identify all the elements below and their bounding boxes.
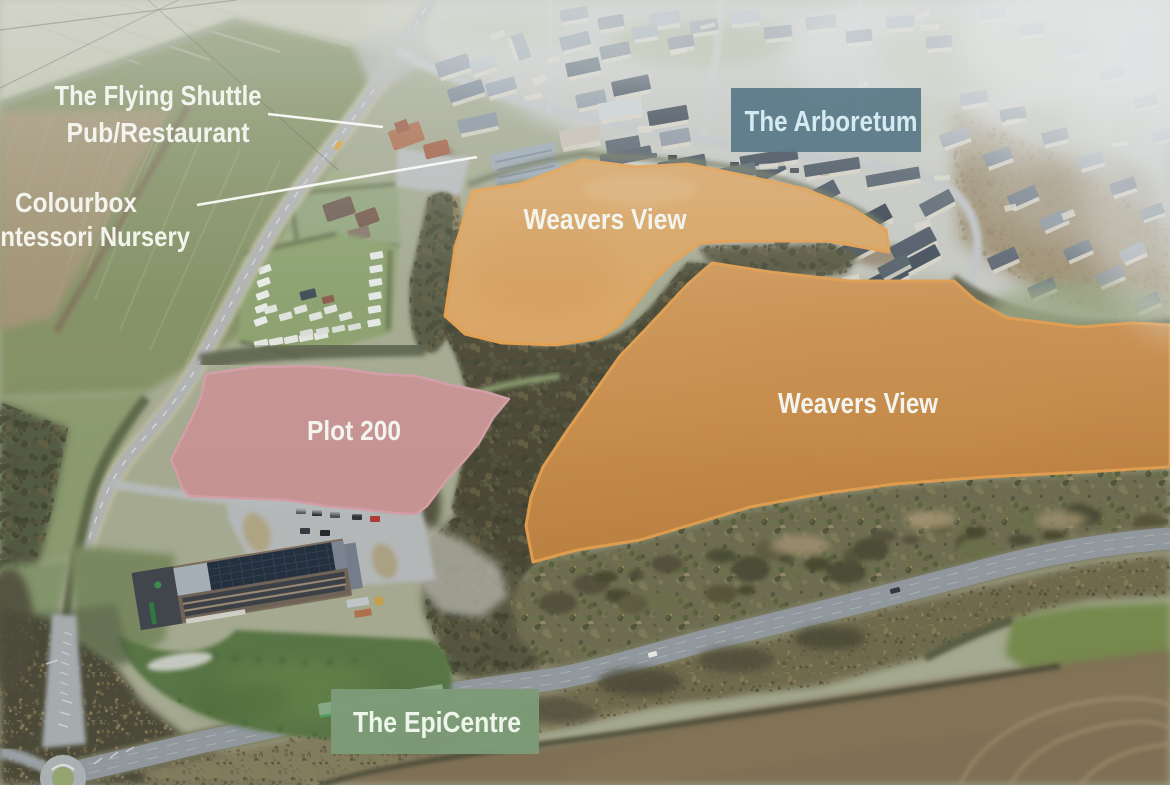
svg-text:Plot 200: Plot 200	[307, 415, 401, 446]
svg-text:Colourbox: Colourbox	[15, 187, 137, 218]
svg-text:The EpiCentre: The EpiCentre	[353, 707, 521, 739]
svg-text:Montessori Nursery: Montessori Nursery	[0, 221, 190, 252]
svg-text:The Flying Shuttle: The Flying Shuttle	[55, 80, 262, 111]
svg-text:Weavers View: Weavers View	[778, 388, 938, 420]
svg-text:Pub/Restaurant: Pub/Restaurant	[67, 117, 250, 148]
svg-text:Weavers View: Weavers View	[524, 204, 687, 236]
svg-text:The Arboretum: The Arboretum	[745, 106, 918, 138]
